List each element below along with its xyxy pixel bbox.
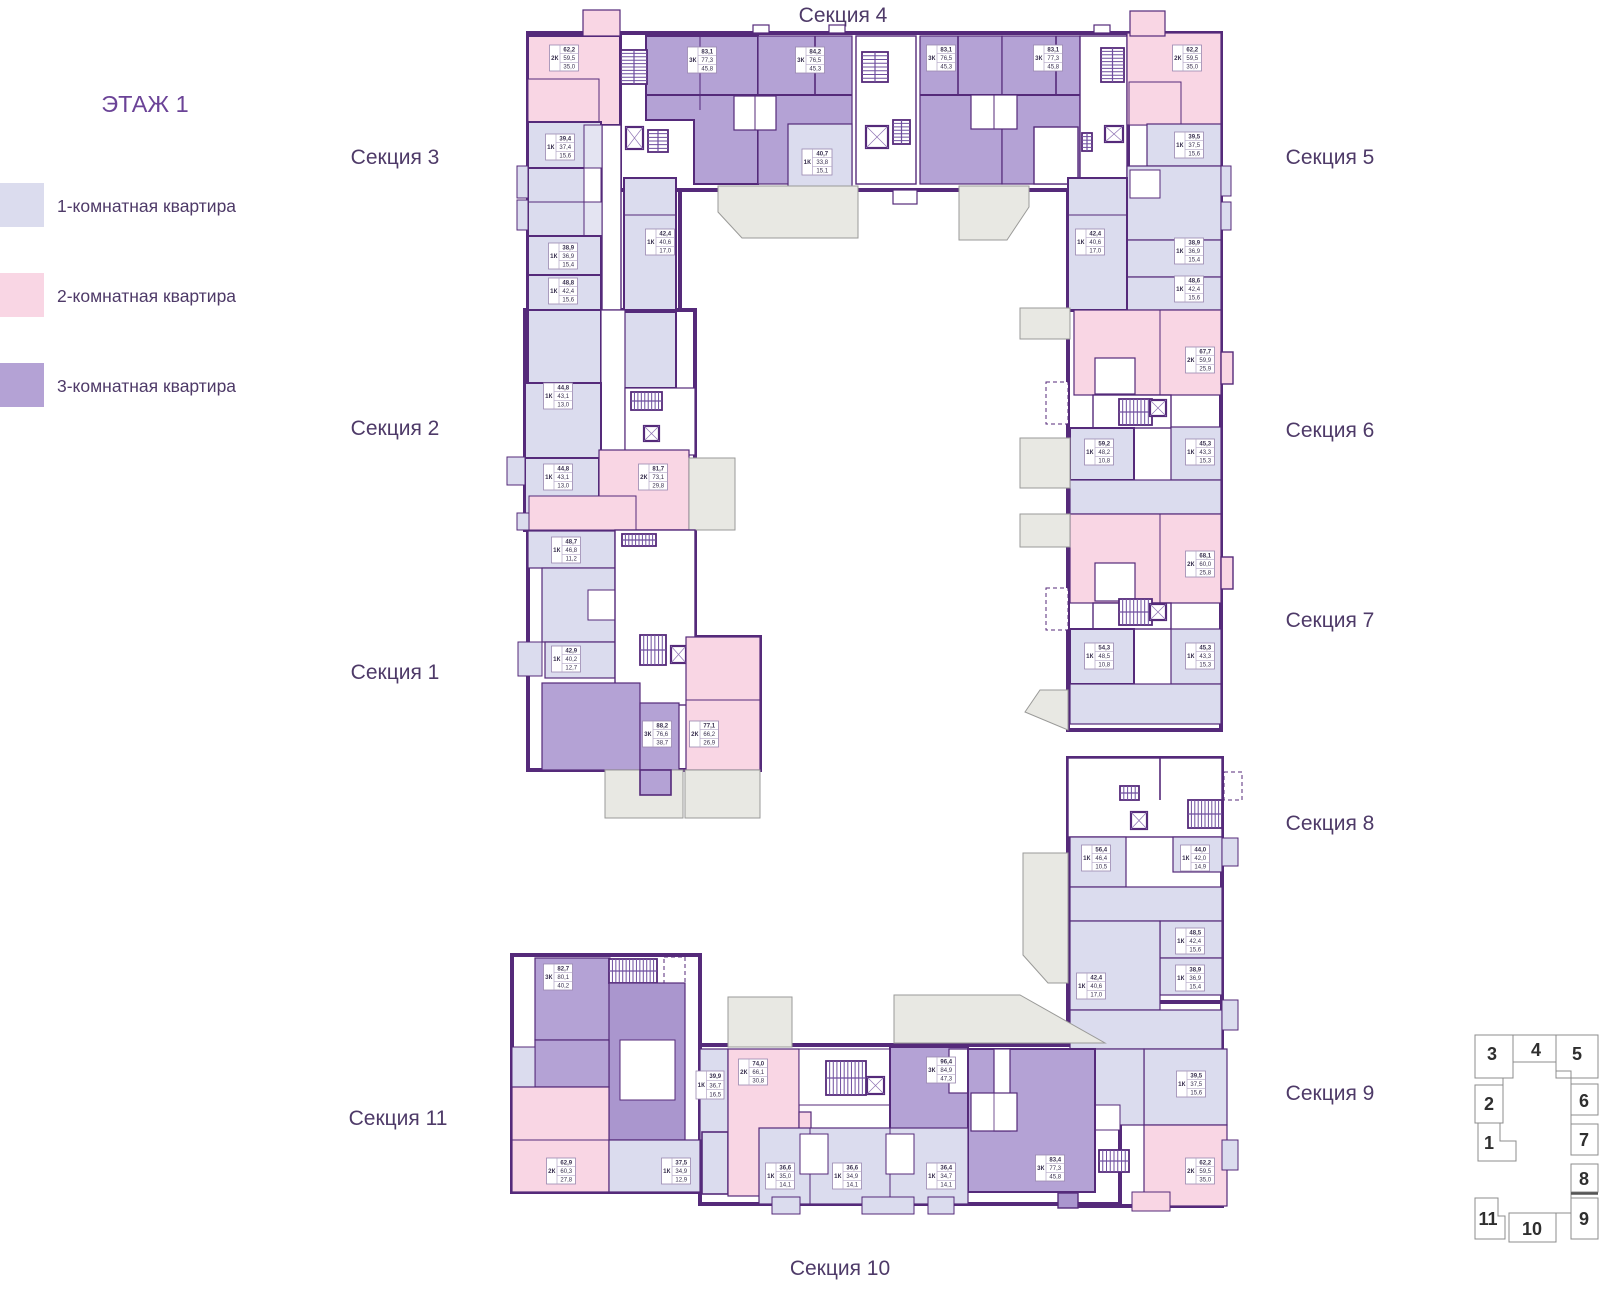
svg-text:25,9: 25,9: [1199, 367, 1211, 373]
svg-text:Секция 3: Секция 3: [351, 146, 440, 169]
svg-text:36,6: 36,6: [846, 1165, 858, 1171]
svg-text:34,7: 34,7: [940, 1174, 952, 1180]
svg-text:2К: 2К: [1187, 1168, 1194, 1175]
svg-text:38,9: 38,9: [1189, 967, 1201, 973]
svg-text:96,4: 96,4: [940, 1059, 952, 1065]
svg-text:35,0: 35,0: [779, 1174, 791, 1180]
svg-text:46,8: 46,8: [565, 548, 577, 554]
svg-text:82,7: 82,7: [557, 966, 569, 972]
svg-text:44,8: 44,8: [557, 385, 569, 391]
svg-text:44,8: 44,8: [557, 466, 569, 472]
svg-text:39,4: 39,4: [559, 136, 571, 142]
svg-text:1К: 1К: [1078, 983, 1085, 990]
svg-text:62,2: 62,2: [1186, 47, 1198, 53]
svg-text:36,4: 36,4: [940, 1165, 952, 1171]
svg-text:1К: 1К: [1086, 653, 1093, 660]
svg-text:15,6: 15,6: [1189, 948, 1201, 954]
svg-text:1К: 1К: [1176, 248, 1183, 255]
svg-text:83,1: 83,1: [1047, 47, 1059, 53]
svg-text:42,9: 42,9: [565, 648, 577, 654]
svg-text:74,0: 74,0: [752, 1061, 764, 1067]
svg-text:13,0: 13,0: [557, 484, 569, 490]
svg-text:35,0: 35,0: [1199, 1178, 1211, 1184]
svg-text:1К: 1К: [550, 288, 557, 295]
svg-text:35,0: 35,0: [1186, 65, 1198, 71]
svg-text:3К: 3К: [928, 55, 935, 62]
svg-text:83,4: 83,4: [1049, 1157, 1061, 1163]
svg-text:39,5: 39,5: [1190, 1073, 1202, 1079]
svg-text:45,3: 45,3: [809, 67, 821, 73]
svg-text:2К: 2К: [1174, 55, 1181, 62]
svg-text:1К: 1К: [550, 253, 557, 260]
svg-text:34,9: 34,9: [846, 1174, 858, 1180]
svg-text:15,4: 15,4: [1188, 258, 1200, 264]
svg-text:45,8: 45,8: [701, 67, 713, 73]
svg-text:42,4: 42,4: [659, 231, 671, 237]
svg-text:1К: 1К: [698, 1082, 705, 1089]
svg-text:Секция 8: Секция 8: [1286, 812, 1375, 835]
svg-text:42,4: 42,4: [1188, 287, 1200, 293]
svg-text:48,6: 48,6: [1188, 278, 1200, 284]
svg-text:14,1: 14,1: [779, 1183, 791, 1189]
svg-text:8: 8: [1579, 1169, 1589, 1189]
svg-text:43,3: 43,3: [1199, 450, 1211, 456]
svg-text:11,2: 11,2: [566, 557, 578, 563]
svg-text:1К: 1К: [834, 1173, 841, 1180]
svg-text:54,3: 54,3: [1098, 645, 1110, 651]
svg-text:12,7: 12,7: [565, 666, 577, 672]
svg-text:39,5: 39,5: [1188, 134, 1200, 140]
svg-text:Секция 4: Секция 4: [799, 4, 888, 27]
svg-text:62,2: 62,2: [1199, 1160, 1211, 1166]
svg-text:42,0: 42,0: [1194, 856, 1206, 862]
svg-text:15,4: 15,4: [1189, 985, 1201, 991]
svg-text:59,5: 59,5: [1199, 1169, 1211, 1175]
svg-text:42,4: 42,4: [1089, 231, 1101, 237]
svg-text:3-комнатная квартира: 3-комнатная квартира: [57, 376, 236, 396]
svg-text:80,1: 80,1: [557, 975, 569, 981]
svg-text:1К: 1К: [1187, 653, 1194, 660]
svg-text:1К: 1К: [547, 144, 554, 151]
svg-text:15,4: 15,4: [562, 263, 574, 269]
svg-text:15,3: 15,3: [1199, 663, 1211, 669]
svg-text:59,5: 59,5: [563, 56, 575, 62]
svg-text:15,6: 15,6: [559, 154, 571, 160]
svg-text:42,4: 42,4: [562, 289, 574, 295]
svg-text:43,3: 43,3: [1199, 654, 1211, 660]
svg-text:Секция 7: Секция 7: [1286, 609, 1375, 632]
svg-text:40,6: 40,6: [659, 240, 671, 246]
svg-text:76,5: 76,5: [940, 56, 952, 62]
svg-text:59,2: 59,2: [1098, 441, 1110, 447]
svg-text:62,9: 62,9: [560, 1160, 572, 1166]
svg-text:36,9: 36,9: [1189, 976, 1201, 982]
svg-text:10: 10: [1522, 1219, 1542, 1239]
svg-text:62,2: 62,2: [563, 47, 575, 53]
svg-text:27,8: 27,8: [560, 1178, 572, 1184]
svg-text:2К: 2К: [691, 731, 698, 738]
svg-text:1К: 1К: [1178, 1081, 1185, 1088]
svg-text:67,7: 67,7: [1199, 349, 1211, 355]
svg-text:37,5: 37,5: [1188, 143, 1200, 149]
svg-text:83,1: 83,1: [701, 49, 713, 55]
svg-text:2К: 2К: [640, 474, 647, 481]
svg-text:30,8: 30,8: [752, 1079, 764, 1085]
svg-text:40,7: 40,7: [816, 151, 828, 157]
svg-text:4: 4: [1531, 1040, 1541, 1060]
svg-text:76,6: 76,6: [656, 732, 668, 738]
svg-text:10,5: 10,5: [1095, 865, 1107, 871]
svg-text:Секция 1: Секция 1: [351, 661, 440, 684]
svg-text:77,3: 77,3: [1049, 1166, 1061, 1172]
svg-text:40,6: 40,6: [1089, 240, 1101, 246]
svg-text:59,9: 59,9: [1199, 358, 1211, 364]
svg-text:3К: 3К: [1035, 55, 1042, 62]
svg-text:45,3: 45,3: [1199, 441, 1211, 447]
svg-text:9: 9: [1579, 1209, 1589, 1229]
svg-text:48,8: 48,8: [562, 280, 574, 286]
svg-text:44,0: 44,0: [1194, 847, 1206, 853]
svg-text:3К: 3К: [644, 731, 651, 738]
svg-text:26,9: 26,9: [703, 741, 715, 747]
svg-text:12,9: 12,9: [675, 1178, 687, 1184]
svg-text:39,9: 39,9: [709, 1074, 721, 1080]
svg-text:14,1: 14,1: [846, 1183, 858, 1189]
svg-text:15,6: 15,6: [1188, 296, 1200, 302]
svg-text:45,3: 45,3: [1199, 645, 1211, 651]
svg-text:7: 7: [1579, 1130, 1589, 1150]
svg-text:1К: 1К: [1083, 855, 1090, 862]
svg-text:38,9: 38,9: [562, 245, 574, 251]
svg-text:84,2: 84,2: [809, 49, 821, 55]
svg-text:Секция 2: Секция 2: [351, 417, 440, 440]
svg-text:3К: 3К: [928, 1067, 935, 1074]
svg-text:3К: 3К: [545, 974, 552, 981]
svg-text:1К: 1К: [1077, 239, 1084, 246]
svg-text:3К: 3К: [797, 57, 804, 64]
svg-text:1К: 1К: [1177, 975, 1184, 982]
svg-text:1К: 1К: [1176, 286, 1183, 293]
svg-text:66,1: 66,1: [752, 1070, 764, 1076]
svg-text:1К: 1К: [663, 1168, 670, 1175]
svg-text:42,4: 42,4: [1090, 975, 1102, 981]
svg-text:11: 11: [1478, 1209, 1497, 1229]
svg-text:17,0: 17,0: [1090, 993, 1102, 999]
svg-text:1К: 1К: [767, 1173, 774, 1180]
svg-text:48,5: 48,5: [1189, 930, 1201, 936]
svg-text:36,9: 36,9: [1188, 249, 1200, 255]
svg-text:Секция 9: Секция 9: [1286, 1082, 1375, 1105]
svg-text:45,8: 45,8: [1047, 65, 1059, 71]
svg-text:88,2: 88,2: [656, 723, 668, 729]
svg-text:Секция 6: Секция 6: [1286, 419, 1375, 442]
svg-text:56,4: 56,4: [1095, 847, 1107, 853]
svg-text:48,2: 48,2: [1098, 450, 1110, 456]
svg-text:1К: 1К: [553, 656, 560, 663]
svg-text:1К: 1К: [1182, 855, 1189, 862]
svg-text:1К: 1К: [553, 547, 560, 554]
svg-text:77,3: 77,3: [1047, 56, 1059, 62]
svg-text:1К: 1К: [1177, 938, 1184, 945]
svg-text:17,0: 17,0: [1089, 249, 1101, 255]
svg-text:68,1: 68,1: [1199, 553, 1211, 559]
svg-text:2К: 2К: [551, 55, 558, 62]
svg-text:6: 6: [1579, 1091, 1589, 1111]
svg-text:34,9: 34,9: [675, 1169, 687, 1175]
svg-text:66,2: 66,2: [703, 732, 715, 738]
svg-text:10,8: 10,8: [1098, 663, 1110, 669]
svg-text:36,6: 36,6: [779, 1165, 791, 1171]
svg-text:29,8: 29,8: [652, 484, 664, 490]
svg-text:1К: 1К: [928, 1173, 935, 1180]
svg-text:1К: 1К: [1187, 449, 1194, 456]
svg-text:40,2: 40,2: [557, 984, 569, 990]
svg-text:35,0: 35,0: [563, 65, 575, 71]
svg-text:15,6: 15,6: [1190, 1091, 1202, 1097]
svg-text:17,0: 17,0: [659, 249, 671, 255]
svg-text:2К: 2К: [1187, 357, 1194, 364]
svg-text:2: 2: [1484, 1094, 1494, 1114]
svg-text:14,9: 14,9: [1194, 865, 1206, 871]
svg-text:16,5: 16,5: [709, 1093, 721, 1099]
svg-text:48,5: 48,5: [1098, 654, 1110, 660]
svg-text:5: 5: [1572, 1044, 1582, 1064]
svg-text:48,7: 48,7: [565, 539, 577, 545]
svg-text:25,8: 25,8: [1199, 571, 1211, 577]
svg-text:1К: 1К: [1086, 449, 1093, 456]
svg-text:33,8: 33,8: [816, 160, 828, 166]
svg-text:Секция 5: Секция 5: [1286, 146, 1375, 169]
svg-text:1: 1: [1484, 1133, 1494, 1153]
svg-text:2-комнатная квартира: 2-комнатная квартира: [57, 286, 236, 306]
svg-text:81,7: 81,7: [652, 466, 664, 472]
svg-text:ЭТАЖ 1: ЭТАЖ 1: [101, 91, 188, 117]
svg-text:1-комнатная квартира: 1-комнатная квартира: [57, 196, 236, 216]
svg-text:83,1: 83,1: [940, 47, 952, 53]
svg-text:38,7: 38,7: [656, 741, 668, 747]
svg-text:Секция 10: Секция 10: [790, 1257, 890, 1280]
svg-text:38,9: 38,9: [1188, 240, 1200, 246]
svg-text:10,8: 10,8: [1098, 459, 1110, 465]
svg-text:1К: 1К: [1176, 142, 1183, 149]
svg-text:1К: 1К: [545, 393, 552, 400]
svg-text:77,3: 77,3: [701, 58, 713, 64]
svg-text:2К: 2К: [1187, 561, 1194, 568]
svg-text:37,5: 37,5: [1190, 1082, 1202, 1088]
svg-text:37,5: 37,5: [675, 1160, 687, 1166]
svg-text:40,2: 40,2: [565, 657, 577, 663]
svg-text:3К: 3К: [1037, 1165, 1044, 1172]
svg-text:15,6: 15,6: [1188, 152, 1200, 158]
svg-text:43,1: 43,1: [557, 394, 569, 400]
svg-text:1К: 1К: [647, 239, 654, 246]
svg-text:14,1: 14,1: [940, 1183, 952, 1189]
svg-text:36,9: 36,9: [562, 254, 574, 260]
svg-text:43,1: 43,1: [557, 475, 569, 481]
svg-text:36,7: 36,7: [709, 1083, 721, 1089]
svg-text:46,4: 46,4: [1095, 856, 1107, 862]
svg-text:13,0: 13,0: [557, 403, 569, 409]
svg-text:3К: 3К: [689, 57, 696, 64]
svg-text:Секция 11: Секция 11: [349, 1107, 448, 1130]
svg-text:60,0: 60,0: [1199, 562, 1211, 568]
svg-text:1К: 1К: [804, 159, 811, 166]
svg-text:73,1: 73,1: [652, 475, 664, 481]
svg-text:37,4: 37,4: [559, 145, 571, 151]
svg-text:60,3: 60,3: [560, 1169, 572, 1175]
svg-text:45,8: 45,8: [1049, 1175, 1061, 1181]
svg-text:1К: 1К: [545, 474, 552, 481]
svg-text:3: 3: [1487, 1044, 1497, 1064]
svg-text:15,3: 15,3: [1199, 459, 1211, 465]
svg-text:45,3: 45,3: [940, 65, 952, 71]
svg-text:15,6: 15,6: [562, 298, 574, 304]
svg-text:2К: 2К: [740, 1069, 747, 1076]
svg-text:77,1: 77,1: [703, 723, 715, 729]
svg-text:47,3: 47,3: [940, 1077, 952, 1083]
svg-text:84,9: 84,9: [940, 1068, 952, 1074]
svg-text:2К: 2К: [548, 1168, 555, 1175]
svg-text:15,1: 15,1: [816, 169, 828, 175]
svg-text:59,5: 59,5: [1186, 56, 1198, 62]
svg-text:42,4: 42,4: [1189, 939, 1201, 945]
svg-text:40,6: 40,6: [1090, 984, 1102, 990]
svg-text:76,5: 76,5: [809, 58, 821, 64]
